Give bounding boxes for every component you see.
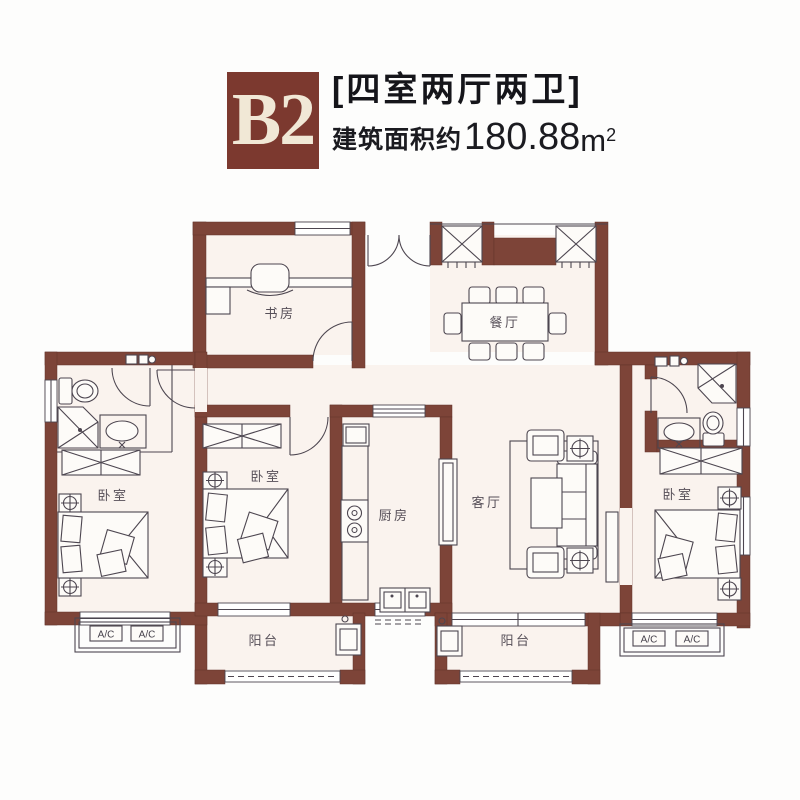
room-label-dining: 餐厅 [489, 315, 520, 330]
ac-label: A/C [641, 635, 658, 646]
shaft-right [556, 226, 596, 268]
middle-bedroom-window [218, 603, 290, 616]
bed-icon [58, 512, 148, 578]
shaft-left [442, 226, 482, 268]
side-table-lamp-icon [567, 436, 593, 461]
wardrobe-icon [62, 450, 140, 475]
room-label-study: 书房 [264, 306, 295, 321]
armchair-icon [527, 430, 564, 461]
tv-cabinet-icon [439, 459, 457, 545]
room-label-living: 客厅 [471, 495, 502, 510]
ac-platform-right: A/C A/C [620, 624, 724, 656]
ac-label: A/C [684, 635, 701, 646]
living-balcony-slider [452, 613, 585, 626]
bed-icon [203, 489, 288, 563]
toilet-icon [59, 378, 98, 404]
sink-icon [380, 588, 430, 612]
toilet-icon [703, 412, 724, 446]
entry-double-door [368, 235, 430, 266]
right-bedroom-sliding-door [606, 512, 618, 582]
armchair-icon [527, 547, 564, 578]
study-window [295, 222, 350, 235]
room-label-bedroom-middle: 卧室 [250, 469, 281, 484]
floor-plan: 书房 餐厅 [0, 0, 800, 800]
room-label-bedroom-left: 卧室 [97, 488, 128, 503]
room-bedroom-middle: 卧室 [203, 424, 288, 577]
room-label-bedroom-right: 卧室 [662, 487, 693, 502]
bed-icon [655, 510, 740, 580]
desk-chair-icon [251, 264, 289, 292]
ac-label: A/C [139, 630, 156, 641]
ac-label: A/C [98, 630, 115, 641]
wardrobe-icon [203, 424, 281, 448]
wardrobe-icon [660, 448, 742, 474]
master-left-window [45, 380, 57, 422]
room-label-balcony-left: 阳台 [248, 633, 279, 648]
floorplan-page: B2 [四室两厅两卫] 建筑面积约 180.88 m 2 [0, 0, 800, 800]
side-table-lamp-icon [567, 548, 593, 573]
right-bath-window [737, 408, 750, 446]
coffee-table-icon [531, 478, 562, 528]
sofa-icon [557, 451, 597, 559]
room-label-kitchen: 厨房 [378, 508, 409, 523]
kitchen-sliding-door [373, 405, 425, 417]
room-label-balcony-right: 阳台 [500, 633, 531, 648]
